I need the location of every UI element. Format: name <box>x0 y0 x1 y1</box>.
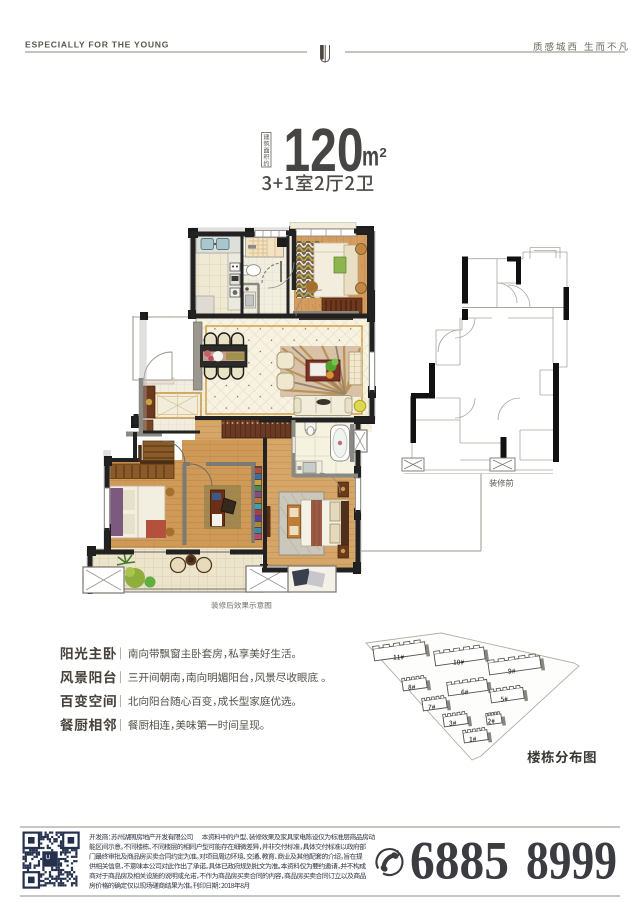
svg-text:120: 120 <box>284 116 364 184</box>
svg-text:8999: 8999 <box>526 831 617 891</box>
svg-text:2: 2 <box>380 145 387 160</box>
svg-text:m: m <box>362 141 379 172</box>
svg-text:6885: 6885 <box>410 831 509 891</box>
svg-text:ESPECIALLY FOR THE YOUNG: ESPECIALLY FOR THE YOUNG <box>25 40 169 50</box>
